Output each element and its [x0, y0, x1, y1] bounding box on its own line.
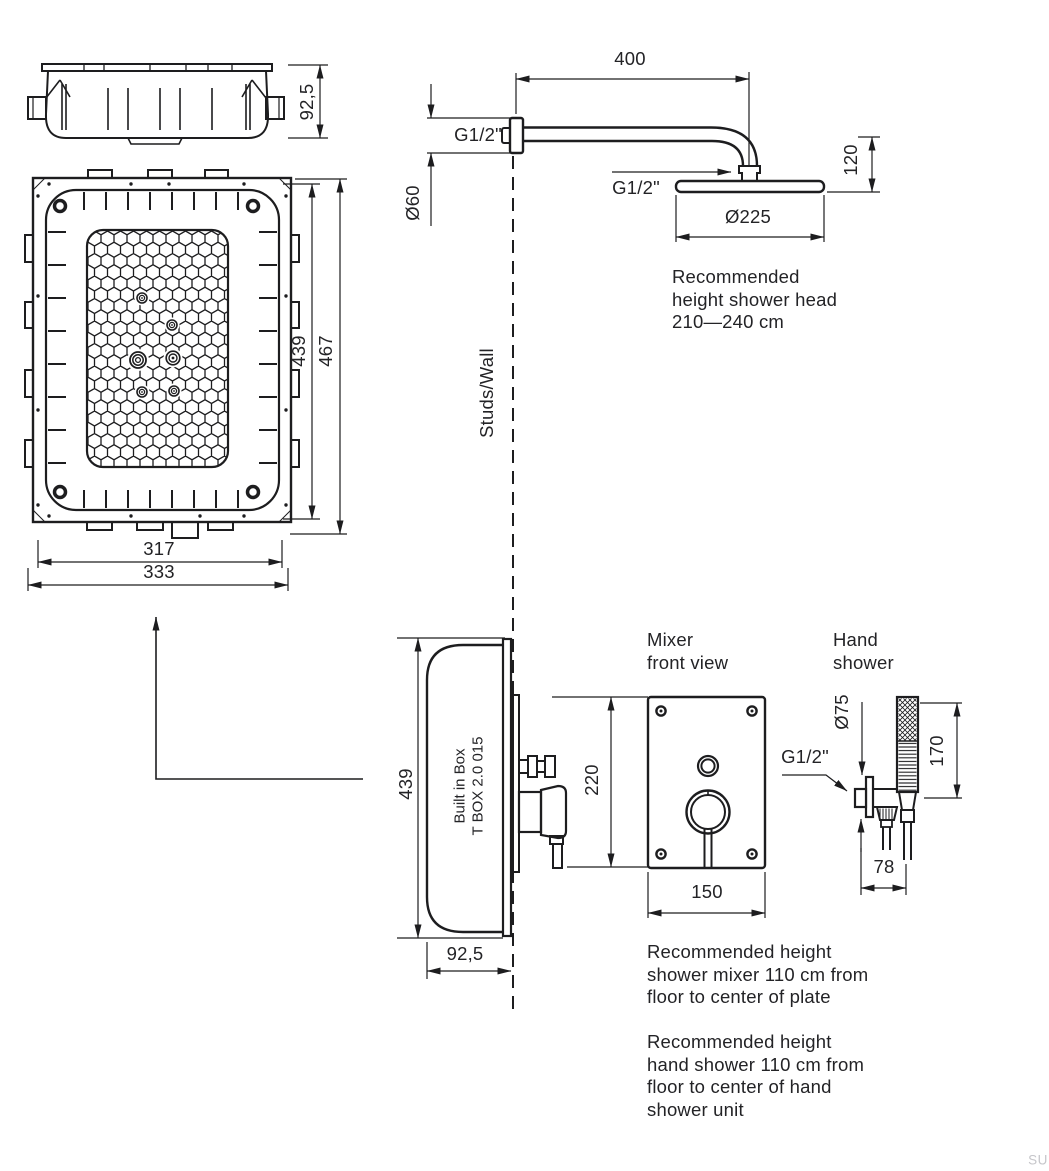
dim-hand-shower-escutcheon-diameter-label: Ø75 — [831, 694, 853, 730]
dim-side-box-depth-label: 92,5 — [447, 943, 484, 965]
dim-hand-shower-thread-label: G1/2" — [781, 746, 829, 768]
hand-shower-title: Hand shower — [833, 629, 894, 674]
dims-shower-arm — [427, 72, 880, 242]
dim-side-box-height-label: 439 — [395, 768, 417, 799]
dim-head-diameter-label: Ø225 — [725, 206, 771, 228]
dim-hand-shower-length-label: 170 — [926, 735, 948, 766]
dim-front-outer-width-label: 333 — [143, 561, 174, 583]
built-in-box-label: Built in Box T BOX 2.0 015 — [452, 737, 487, 836]
drawing-svg — [0, 0, 1049, 1171]
note-hand-shower-height: Recommended height hand shower 110 cm fr… — [647, 1031, 864, 1121]
dim-hand-shower-offset-label: 78 — [874, 856, 895, 878]
note-shower-head-height: Recommended height shower head 210—240 c… — [672, 266, 837, 334]
dim-head-thread-label: G1/2" — [612, 177, 660, 199]
dim-top-box-depth-label: 92,5 — [296, 84, 318, 121]
note-mixer-height: Recommended height shower mixer 110 cm f… — [647, 941, 868, 1009]
honeycomb-grid — [87, 230, 228, 467]
dim-front-inner-height-label: 439 — [288, 335, 310, 366]
shower-arm-and-head — [502, 118, 824, 192]
built-in-box-front-view — [25, 170, 299, 538]
installation-diagram: 92,5 439 467 317 333 400 G1/2" Ø60 G1/2"… — [0, 0, 1049, 1171]
studs-wall-label: Studs/Wall — [476, 348, 498, 438]
dim-front-inner-width-label: 317 — [143, 538, 174, 560]
mixer-plate-screws — [656, 706, 756, 858]
projection-arrow — [156, 617, 363, 779]
mixer-handle-base — [687, 791, 730, 834]
dim-head-height-label: 120 — [840, 144, 862, 175]
dim-arm-length-label: 400 — [614, 48, 645, 70]
watermark: SU — [1028, 1153, 1048, 1168]
dim-arm-escutcheon-diameter-label: Ø60 — [402, 185, 424, 221]
dim-front-outer-height-label: 467 — [315, 335, 337, 366]
mixer-title: Mixer front view — [647, 629, 728, 674]
mixer-side-view — [513, 695, 566, 872]
hand-shower-unit — [855, 697, 918, 860]
mixer-lever — [705, 829, 712, 868]
mixer-front-view — [648, 697, 765, 868]
dim-arm-thread-label: G1/2" — [454, 124, 502, 146]
dims-side-view — [397, 638, 648, 979]
dim-mixer-plate-width-label: 150 — [691, 881, 722, 903]
dim-mixer-plate-height-label: 220 — [581, 764, 603, 795]
built-in-box-top-view — [28, 64, 284, 144]
